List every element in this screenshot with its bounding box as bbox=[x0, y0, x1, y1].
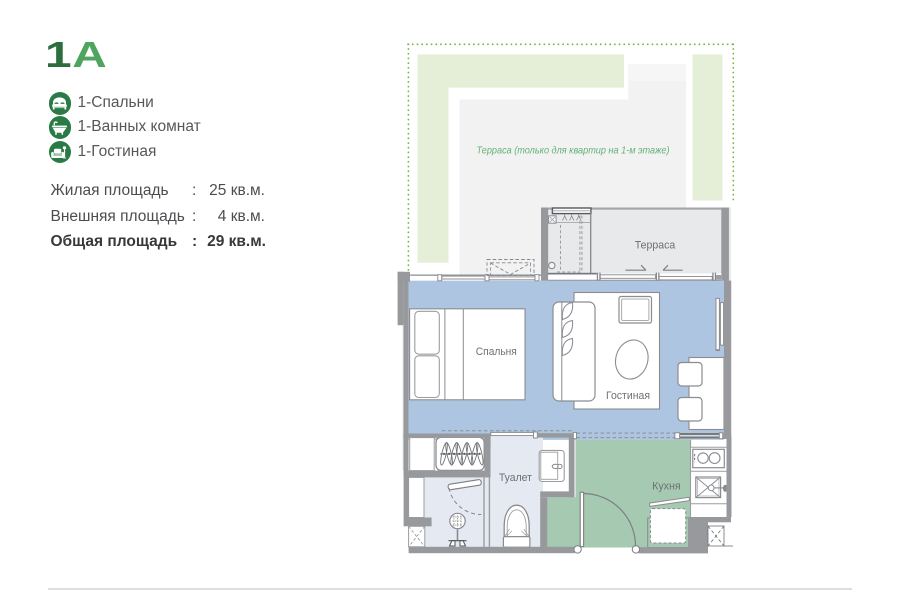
svg-text:Спальня: Спальня bbox=[476, 346, 517, 358]
svg-text:Кухня: Кухня bbox=[652, 480, 681, 492]
svg-text:Терраса: Терраса bbox=[635, 240, 676, 252]
svg-text:Туалет: Туалет bbox=[499, 472, 532, 484]
svg-text:Терраса (только для квартир на: Терраса (только для квартир на 1-м этаже… bbox=[477, 146, 670, 157]
svg-text:Гостиная: Гостиная bbox=[606, 390, 650, 402]
